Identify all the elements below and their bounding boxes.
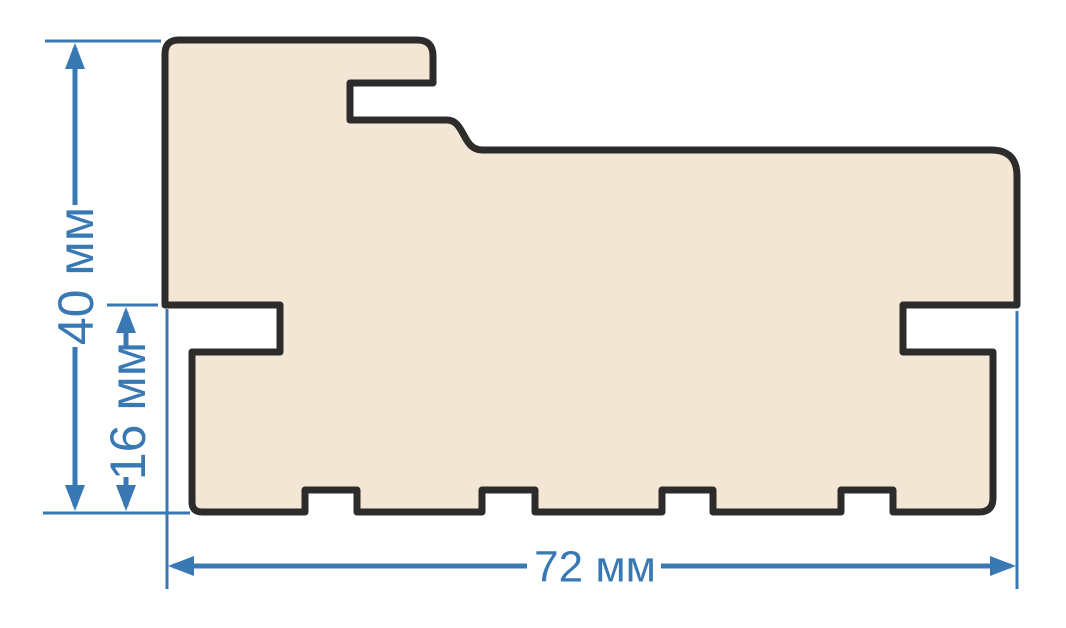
arrow-up-icon xyxy=(116,307,136,333)
arrow-left-icon xyxy=(168,556,194,576)
diagram-canvas: 40 мм 16 мм 72 мм xyxy=(0,0,1066,628)
door-frame-profile-diagram: 40 мм 16 мм 72 мм xyxy=(0,0,1066,628)
dimension-label-72mm: 72 мм xyxy=(534,543,656,592)
dimension-label-40mm: 40 мм xyxy=(48,207,104,345)
dimension-lower-height: 16 мм xyxy=(100,307,156,511)
arrow-up-icon xyxy=(65,43,85,69)
profile-cross-section-shape xyxy=(165,40,1017,512)
dimension-label-16mm: 16 мм xyxy=(100,342,156,480)
dimension-total-width: 72 мм xyxy=(168,543,1016,592)
dimension-total-height: 40 мм xyxy=(48,43,104,511)
arrow-down-icon xyxy=(65,485,85,511)
arrow-right-icon xyxy=(990,556,1016,576)
arrow-down-icon xyxy=(116,485,136,511)
